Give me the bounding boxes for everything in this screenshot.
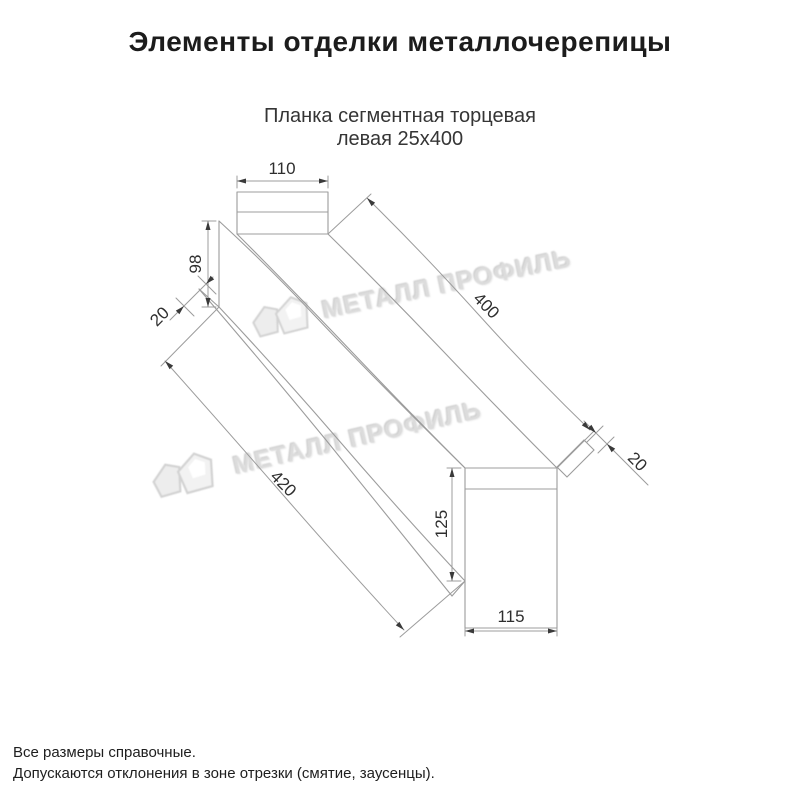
dim-420-lines	[161, 307, 465, 637]
dim-label-110: 110	[268, 159, 295, 179]
edge-plate-right	[328, 234, 557, 468]
profile-drawing	[0, 0, 800, 800]
near-end-plate	[237, 192, 328, 234]
dim-label-98: 98	[186, 255, 206, 274]
dim-400-lines	[328, 194, 594, 468]
dimension-arrowheads	[165, 179, 615, 634]
far-top-flange	[557, 440, 594, 477]
footer-note-1: Все размеры справочные.	[13, 742, 435, 763]
dim-label-115: 115	[497, 607, 524, 627]
footer-notes: Все размеры справочные. Допускаются откл…	[13, 742, 435, 784]
dim-label-125: 125	[432, 510, 452, 538]
page: { "header": { "title": "Элементы отделки…	[0, 0, 800, 800]
far-end-plate	[465, 468, 557, 628]
edge-bottom	[219, 307, 465, 581]
dim-115-lines	[465, 628, 557, 636]
footer-note-2: Допускаются отклонения в зоне отрезки (с…	[13, 763, 435, 784]
edge-plate-left	[237, 234, 465, 468]
